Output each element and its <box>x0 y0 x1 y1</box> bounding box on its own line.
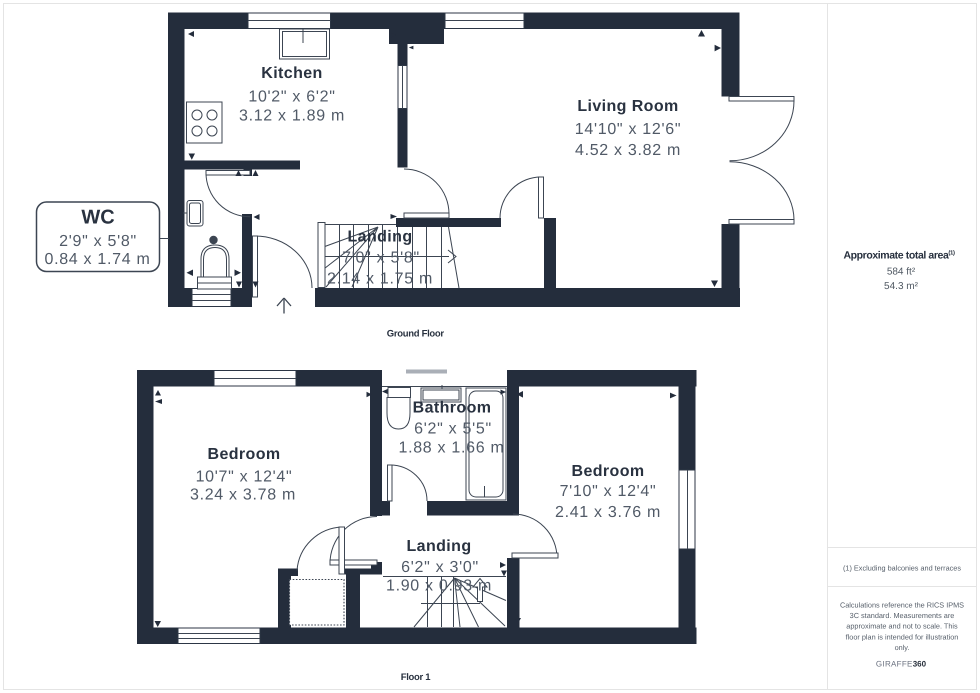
svg-text:WC: WC <box>81 207 114 229</box>
svg-text:7'10" x 12'4": 7'10" x 12'4" <box>560 483 657 500</box>
svg-text:6'2" x 3'0": 6'2" x 3'0" <box>401 559 479 576</box>
svg-text:7'0" x 5'8": 7'0" x 5'8" <box>342 250 420 267</box>
svg-text:3.24 x 3.78 m: 3.24 x 3.78 m <box>190 486 296 503</box>
svg-text:14'10" x 12'6": 14'10" x 12'6" <box>575 121 681 138</box>
svg-text:Landing: Landing <box>406 538 471 555</box>
svg-text:3C standard. Measurements are: 3C standard. Measurements are <box>850 611 955 620</box>
svg-text:floor plan is intended for ill: floor plan is intended for illustration <box>846 632 959 641</box>
svg-text:Ground Floor: Ground Floor <box>387 329 445 340</box>
svg-text:6'2" x 5'5": 6'2" x 5'5" <box>414 421 492 438</box>
svg-text:0.84 x 1.74 m: 0.84 x 1.74 m <box>44 251 150 268</box>
svg-text:2.14 x 1.75 m: 2.14 x 1.75 m <box>327 271 433 288</box>
svg-text:Landing: Landing <box>347 228 412 245</box>
svg-text:10'2" x 6'2": 10'2" x 6'2" <box>248 88 335 105</box>
svg-text:GIRAFFE360: GIRAFFE360 <box>876 660 927 669</box>
svg-text:Bedroom: Bedroom <box>207 446 280 463</box>
svg-text:1.90 x 0.93 m: 1.90 x 0.93 m <box>386 578 492 595</box>
svg-text:1.88 x 1.66 m: 1.88 x 1.66 m <box>398 440 504 457</box>
svg-text:only.: only. <box>895 643 910 652</box>
svg-text:Kitchen: Kitchen <box>261 65 322 82</box>
svg-text:4.52 x 3.82 m: 4.52 x 3.82 m <box>575 142 681 159</box>
svg-text:approximate and not to scale.: approximate and not to scale. This <box>846 622 958 631</box>
svg-text:54.3 m²: 54.3 m² <box>884 281 919 292</box>
svg-text:Approximate total area(1): Approximate total area(1) <box>843 250 955 262</box>
svg-text:(1) Excluding balconies and te: (1) Excluding balconies and terraces <box>843 564 961 573</box>
svg-text:Floor 1: Floor 1 <box>401 672 432 683</box>
svg-text:Calculations reference the RIC: Calculations reference the RICS IPMS <box>840 601 964 610</box>
svg-text:3.12 x 1.89 m: 3.12 x 1.89 m <box>239 107 345 124</box>
svg-text:2'9" x 5'8": 2'9" x 5'8" <box>59 233 137 250</box>
svg-text:Living Room: Living Room <box>577 98 678 115</box>
svg-text:584 ft²: 584 ft² <box>887 267 916 278</box>
svg-text:2.41 x 3.76 m: 2.41 x 3.76 m <box>555 504 661 521</box>
svg-text:Bedroom: Bedroom <box>571 463 644 480</box>
svg-text:10'7" x 12'4": 10'7" x 12'4" <box>196 468 293 485</box>
svg-text:Bathroom: Bathroom <box>413 400 492 417</box>
